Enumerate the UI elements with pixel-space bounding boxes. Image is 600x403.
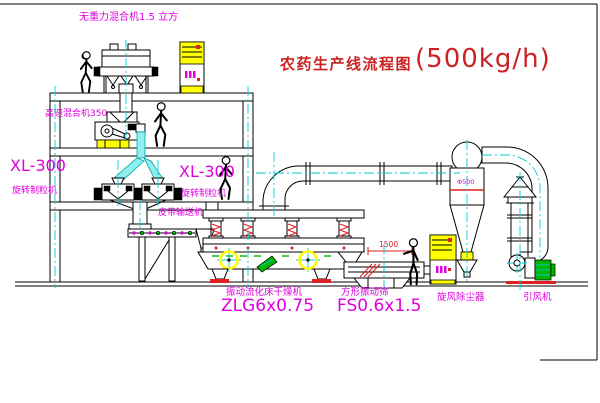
fluid-bed-dryer <box>198 202 364 283</box>
dryer-springs <box>209 218 351 239</box>
label-granulator-left-model: XL-300 <box>10 158 66 175</box>
label-sieve-model: FS0.6x1.5 <box>337 298 421 316</box>
label-cyclone: 旋风除尘器 <box>437 293 485 303</box>
duct-cyclone-to-fan <box>482 147 548 262</box>
label-granulator-left-name: 旋转制粒机 <box>12 187 57 196</box>
vibrating-sieve <box>344 262 434 288</box>
label-cyclone-size: Φ500 <box>457 179 475 186</box>
duct-dryer-to-cyclone <box>259 162 452 210</box>
control-cabinet-upper <box>180 42 204 93</box>
label-belt-conveyor: 皮带输送机 <box>158 209 203 218</box>
gravity-free-mixer <box>82 44 158 112</box>
label-high-speed-mixer: 高速混合机350 <box>45 110 107 119</box>
label-sieve-dimension: 1500 <box>379 241 398 249</box>
title-capacity: (500kg/h) <box>415 44 551 74</box>
label-gravity-mixer: 无重力混合机1.5 立方 <box>79 13 178 24</box>
label-granulator-right-name: 旋转制粒机 <box>181 190 226 199</box>
label-fan: 引风机 <box>523 293 552 303</box>
worker-second-floor <box>155 103 167 146</box>
label-dryer-model: ZLG6x0.75 <box>221 298 314 316</box>
title-text: 农药生产线流程图 <box>280 44 412 74</box>
page-title: 农药生产线流程图 (500kg/h) <box>280 44 551 74</box>
induced-draft-fan <box>506 253 556 284</box>
label-granulator-right-model: XL-300 <box>179 164 235 181</box>
control-cabinet-lower <box>430 235 456 284</box>
flow-diagram: 农药生产线流程图 (500kg/h) 无重力混合机1.5 立方 高速混合机350… <box>0 0 600 403</box>
